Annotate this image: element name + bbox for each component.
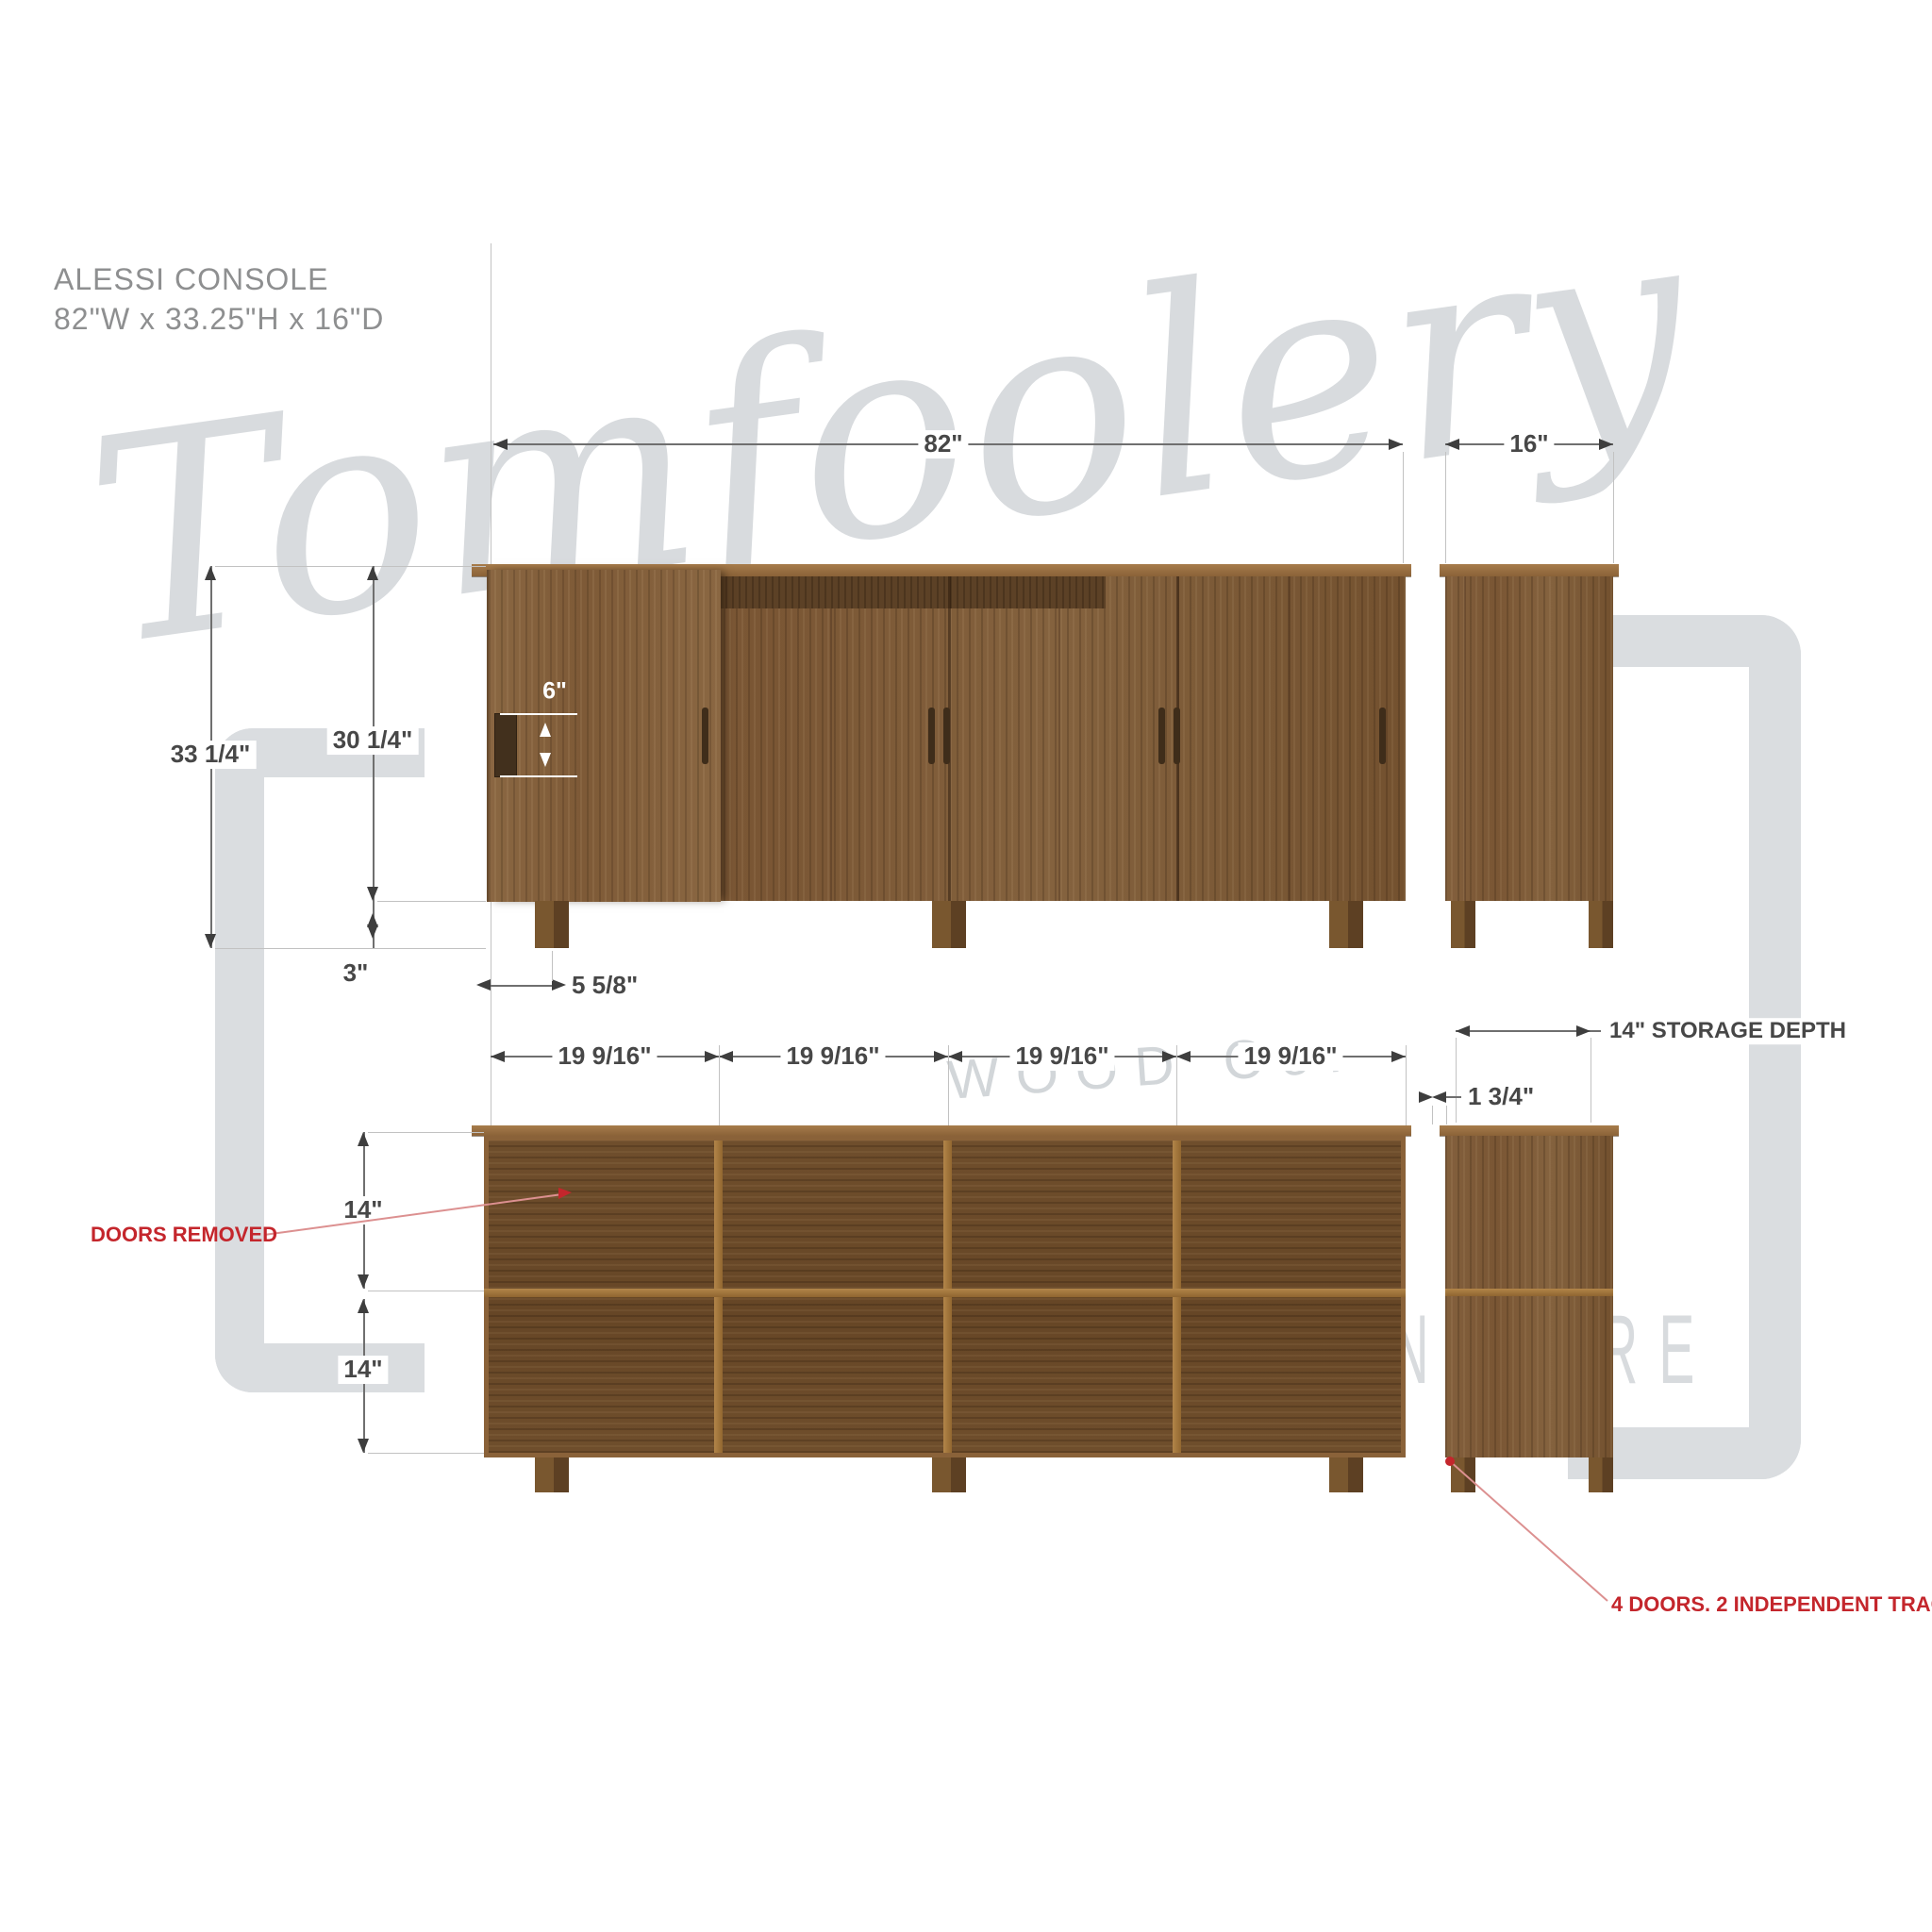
- dim-label-panel: 1 3/4": [1464, 1083, 1538, 1111]
- dimension-layer: 82" 16" 33 1/4" 30 1/4" 3" 5 5/8": [0, 0, 1932, 1932]
- dim-line-leg-inset: [491, 985, 552, 987]
- extension-line: [948, 1045, 949, 1125]
- blueprint-canvas: Tomfoolery WOOD Co. FURNITURE ALESSI CON…: [0, 0, 1932, 1932]
- arrowhead-left: [1456, 1025, 1470, 1037]
- extension-line: [368, 1453, 484, 1454]
- extension-line: [1432, 1106, 1433, 1124]
- dim-label-leg-height: 3": [338, 959, 375, 988]
- dim-label-depth: 16": [1504, 430, 1554, 458]
- extension-line: [552, 951, 553, 981]
- handle-bracket-line: [500, 713, 577, 715]
- extension-line: [1591, 1038, 1591, 1123]
- handle-bracket-line: [500, 775, 577, 777]
- extension-line: [1403, 452, 1404, 563]
- arrowhead-left: [1176, 1051, 1191, 1062]
- arrowhead-down: [367, 924, 378, 939]
- arrowhead-up: [367, 566, 378, 580]
- extension-line: [1446, 1106, 1447, 1124]
- arrowhead-right: [1419, 1091, 1433, 1103]
- dim-label-handle: 6": [542, 678, 567, 706]
- extension-line: [368, 1132, 484, 1133]
- arrowhead-down: [367, 887, 378, 901]
- arrowhead-left: [1432, 1091, 1446, 1103]
- extension-line: [368, 1291, 484, 1291]
- dim-label-bay-3: 19 9/16": [1009, 1042, 1114, 1071]
- extension-line: [215, 566, 486, 567]
- arrowhead-left: [948, 1051, 962, 1062]
- dim-label-width: 82": [918, 430, 968, 458]
- arrowhead-up-white: [540, 723, 551, 737]
- arrowhead-right: [552, 979, 566, 991]
- dim-label-shelf-lower: 14": [338, 1356, 388, 1384]
- dim-label-storage-depth: 14" STORAGE DEPTH: [1606, 1018, 1850, 1044]
- dim-label-total-height: 33 1/4": [165, 741, 257, 769]
- arrowhead-left: [1445, 439, 1459, 450]
- arrowhead-left: [491, 1051, 505, 1062]
- arrowhead-left: [476, 979, 491, 991]
- extension-line: [719, 1045, 720, 1125]
- extension-line: [1176, 1045, 1177, 1125]
- extension-line: [215, 948, 486, 949]
- arrowhead-down-white: [540, 753, 551, 767]
- callout-tracks: 4 DOORS. 2 INDEPENDENT TRACKS.: [1611, 1592, 1932, 1617]
- arrowhead-up: [358, 1299, 369, 1313]
- dim-label-leg-inset: 5 5/8": [568, 972, 641, 1000]
- arrowhead-down: [205, 934, 216, 948]
- arrowhead-right: [1389, 439, 1403, 450]
- arrowhead-down: [358, 1439, 369, 1453]
- dim-line-panel: [1446, 1096, 1461, 1098]
- arrowhead-right: [705, 1051, 719, 1062]
- arrowhead-down: [358, 1274, 369, 1289]
- extension-line: [1406, 1045, 1407, 1125]
- dim-label-bay-4: 19 9/16": [1238, 1042, 1342, 1071]
- arrowhead-right: [1162, 1051, 1176, 1062]
- arrowhead-up: [358, 1132, 369, 1146]
- extension-line: [1445, 452, 1446, 563]
- extension-line: [1613, 452, 1614, 563]
- callout-doors-removed: DOORS REMOVED: [91, 1223, 277, 1247]
- extension-line: [377, 901, 486, 902]
- arrowhead-right: [1576, 1025, 1591, 1037]
- arrowhead-left: [719, 1051, 733, 1062]
- dim-label-case-height: 30 1/4": [327, 726, 419, 755]
- extension-line: [1456, 1038, 1457, 1123]
- dim-label-bay-2: 19 9/16": [780, 1042, 885, 1071]
- dim-label-bay-1: 19 9/16": [552, 1042, 657, 1071]
- arrowhead-right: [1599, 439, 1613, 450]
- arrowhead-up: [205, 566, 216, 580]
- dim-label-shelf-upper: 14": [338, 1196, 388, 1224]
- arrowhead-left: [493, 439, 508, 450]
- arrowhead-right: [1391, 1051, 1406, 1062]
- arrowhead-right: [934, 1051, 948, 1062]
